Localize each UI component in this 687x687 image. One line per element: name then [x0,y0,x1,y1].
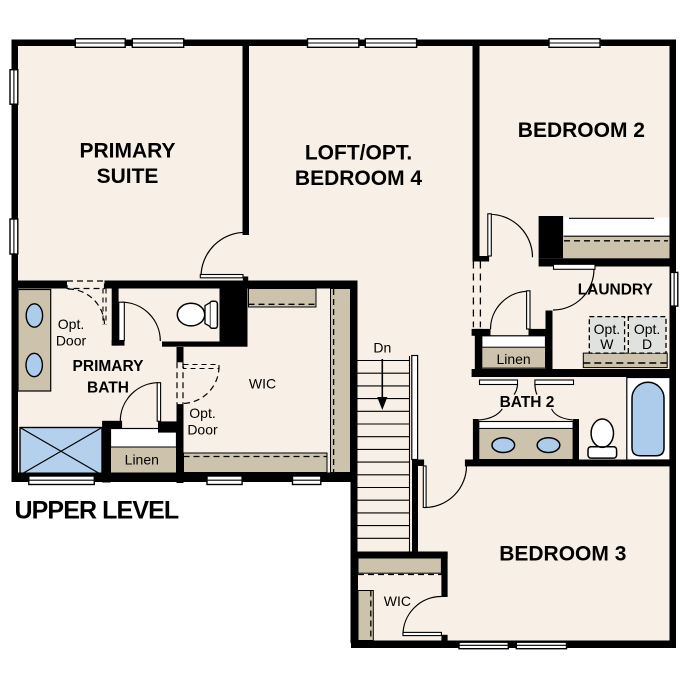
svg-text:PRIMARY: PRIMARY [73,358,145,375]
svg-text:BEDROOM 2: BEDROOM 2 [518,119,645,142]
svg-text:WIC: WIC [249,375,276,391]
svg-text:WIC: WIC [384,593,411,609]
svg-text:Door: Door [187,421,218,437]
svg-text:PRIMARY: PRIMARY [79,140,175,163]
svg-text:BATH 2: BATH 2 [500,394,555,411]
svg-text:Linen: Linen [496,351,530,367]
svg-text:Linen: Linen [125,452,159,468]
svg-text:BEDROOM 4: BEDROOM 4 [295,167,423,190]
svg-text:D: D [642,336,652,352]
svg-text:W: W [600,336,614,352]
svg-text:LOFT/OPT.: LOFT/OPT. [305,142,412,165]
svg-text:Door: Door [56,333,87,349]
svg-text:BEDROOM 3: BEDROOM 3 [499,543,626,566]
svg-text:BATH: BATH [87,379,129,396]
svg-text:SUITE: SUITE [97,165,159,188]
svg-text:Opt.: Opt. [189,405,215,421]
svg-text:Opt.: Opt. [594,321,620,337]
svg-text:UPPER LEVEL: UPPER LEVEL [15,497,179,525]
svg-text:Opt.: Opt. [58,316,84,332]
svg-text:Dn: Dn [373,339,391,355]
svg-text:Opt.: Opt. [634,321,660,337]
svg-text:LAUNDRY: LAUNDRY [578,281,654,298]
